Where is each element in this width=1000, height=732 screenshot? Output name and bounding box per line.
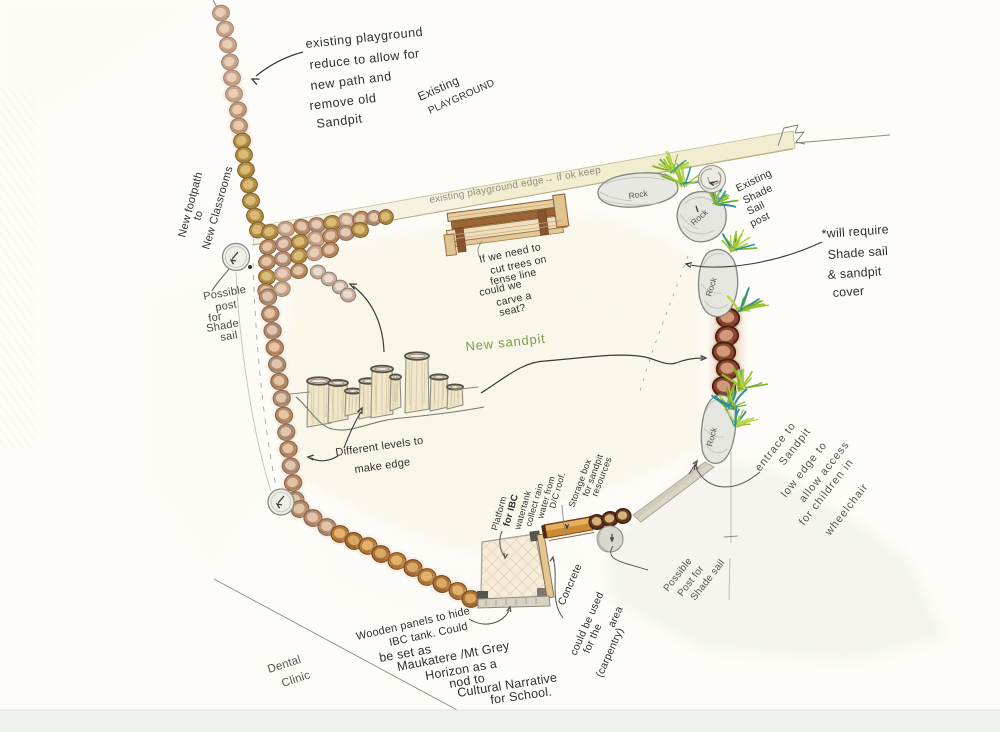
svg-text:cover: cover — [832, 284, 864, 300]
